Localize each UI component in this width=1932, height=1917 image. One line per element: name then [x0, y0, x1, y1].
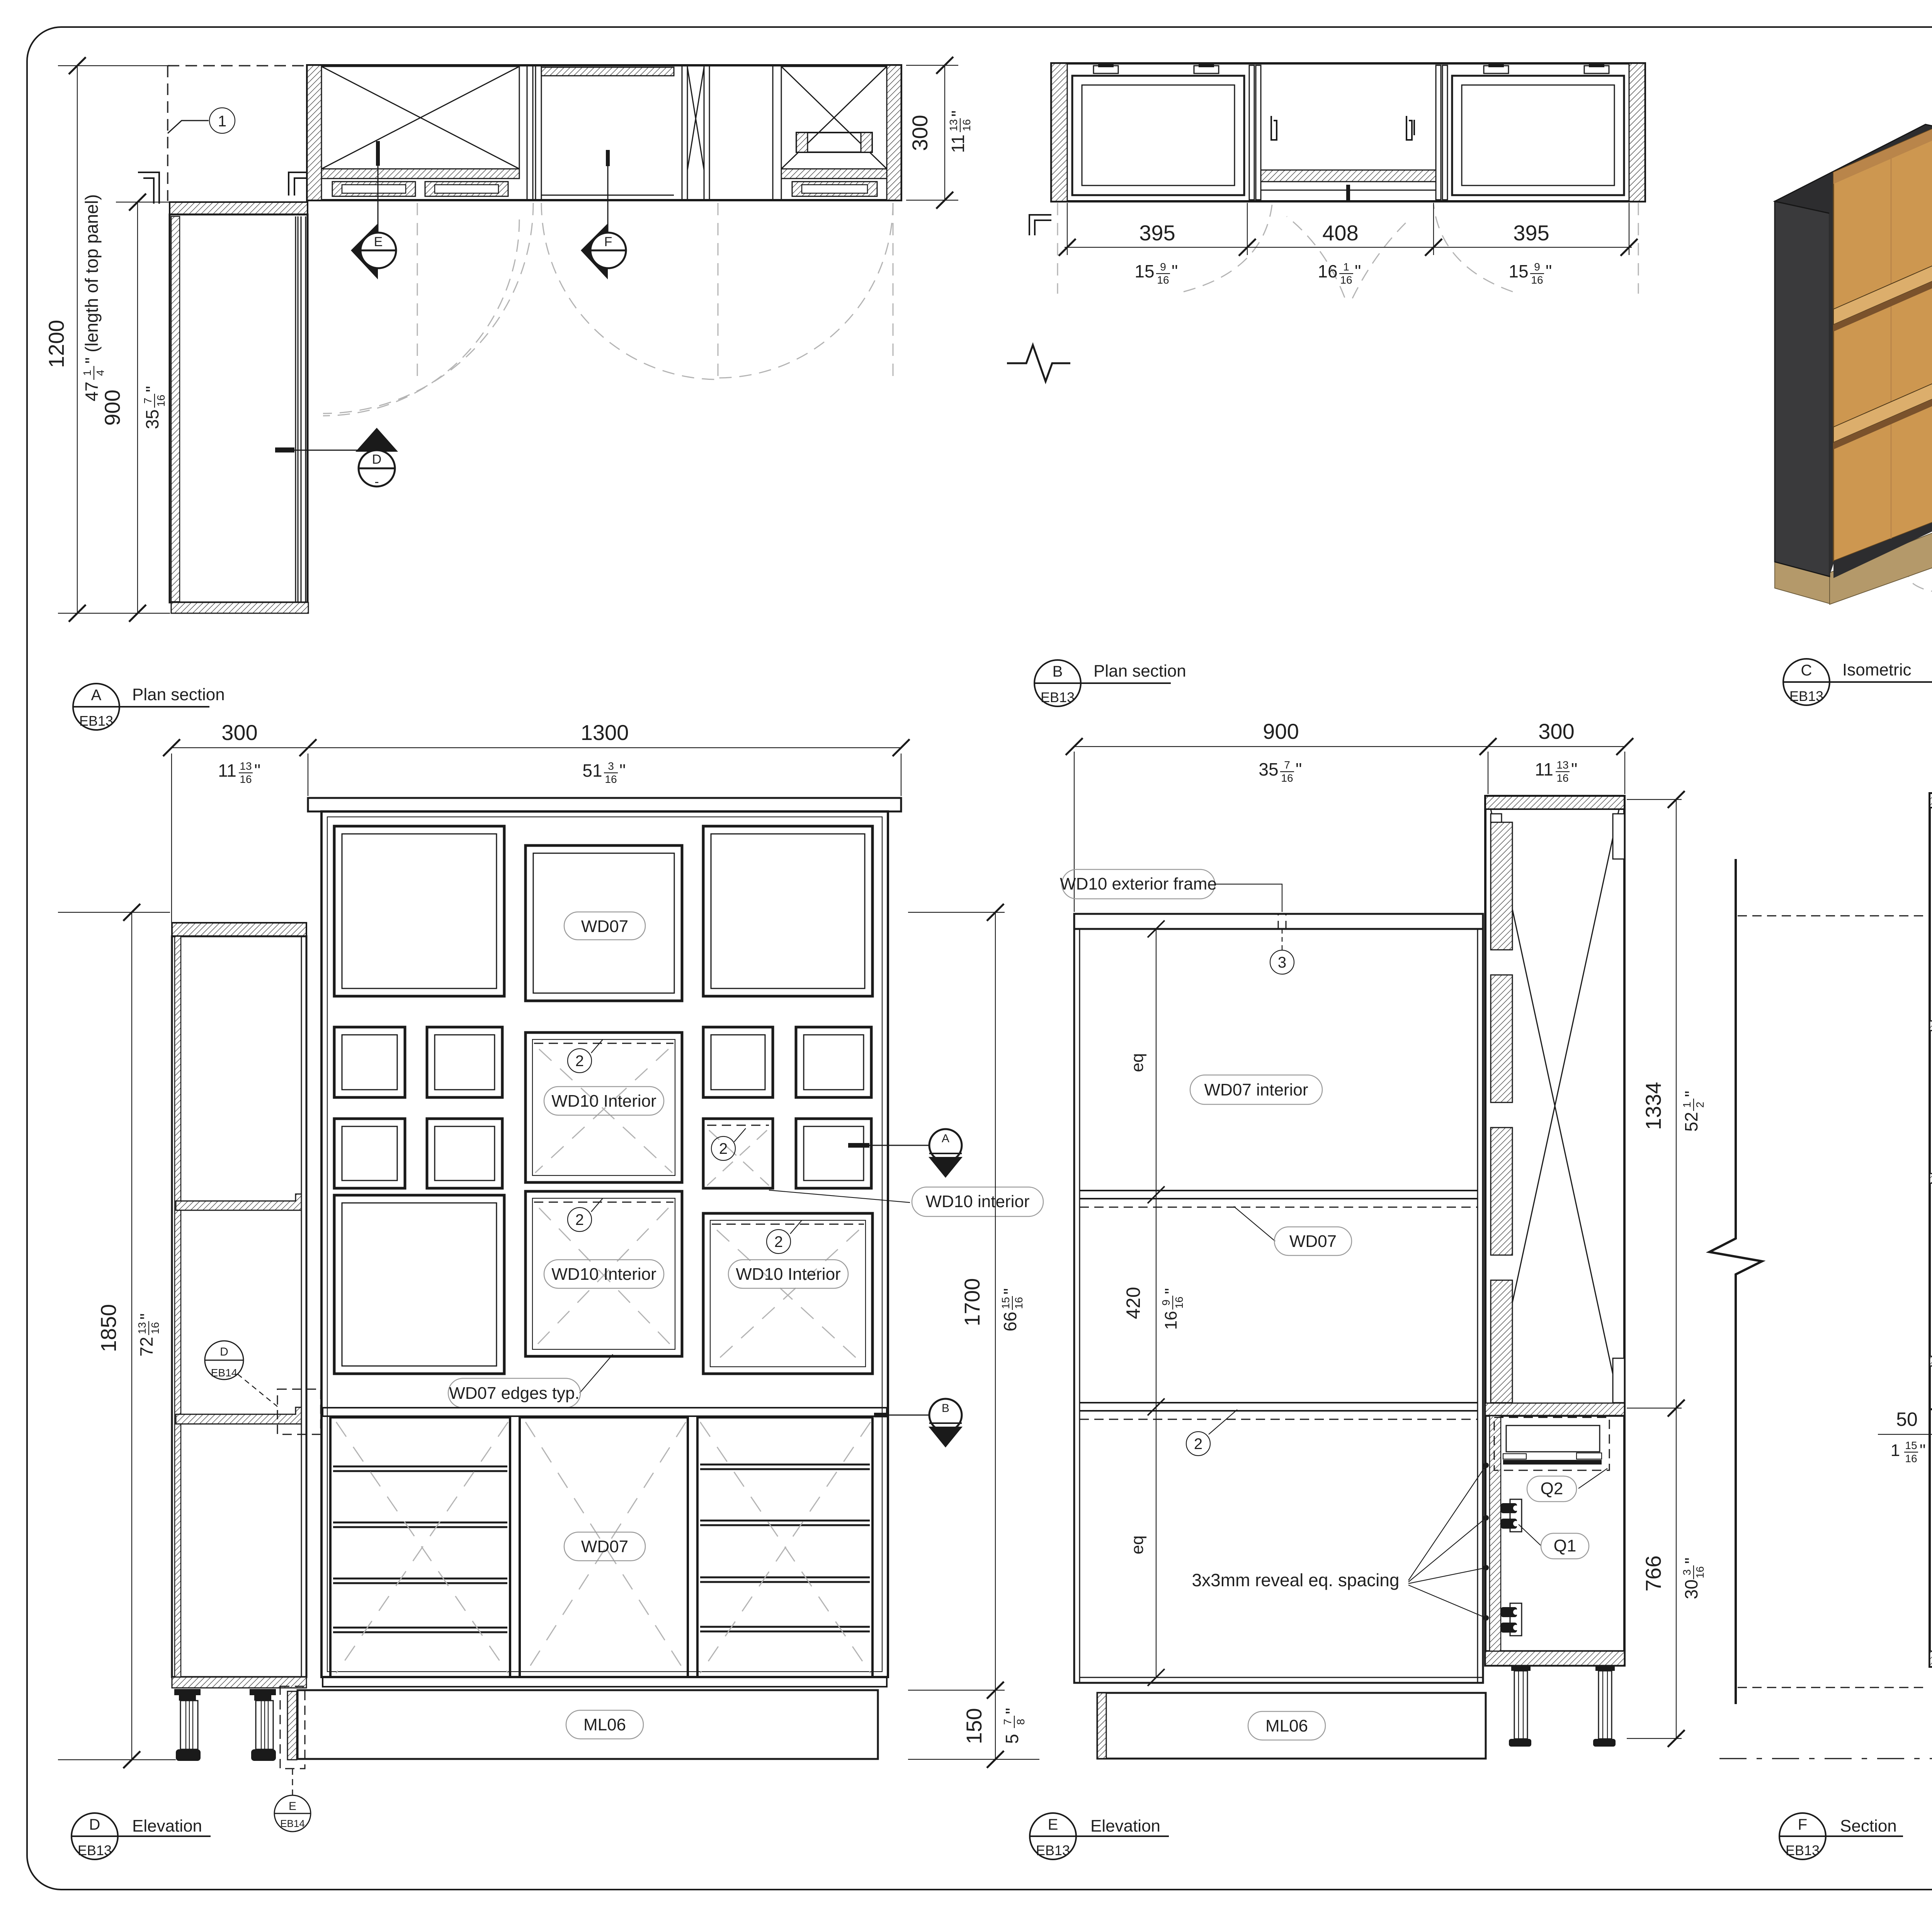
svg-text:13: 13 — [136, 1322, 148, 1334]
svg-text:7: 7 — [142, 398, 154, 404]
svg-text:35: 35 — [1259, 759, 1278, 779]
svg-text:1300: 1300 — [581, 720, 629, 745]
svg-text:2: 2 — [1694, 1102, 1706, 1108]
svg-text:9: 9 — [1160, 1300, 1172, 1306]
svg-text:EB13: EB13 — [79, 713, 113, 729]
svg-text:1850: 1850 — [96, 1304, 121, 1352]
svg-text:": " — [1920, 1441, 1926, 1460]
svg-text:16: 16 — [1694, 1566, 1706, 1578]
svg-text:52: 52 — [1681, 1112, 1701, 1131]
svg-text:Section: Section — [1840, 1817, 1897, 1835]
svg-text:2: 2 — [719, 1140, 728, 1157]
svg-text:35: 35 — [142, 409, 162, 429]
svg-text:16: 16 — [155, 395, 167, 407]
svg-text:300: 300 — [1538, 719, 1574, 743]
svg-text:66: 66 — [1000, 1311, 1020, 1331]
svg-text:-: - — [374, 475, 379, 489]
svg-text:2: 2 — [575, 1053, 584, 1070]
svg-text:30: 30 — [1681, 1579, 1701, 1599]
svg-text:1: 1 — [81, 370, 93, 376]
svg-text:5: 5 — [1002, 1734, 1022, 1744]
svg-text:1334: 1334 — [1641, 1082, 1665, 1130]
svg-text:WD07: WD07 — [1289, 1232, 1337, 1251]
svg-text:Isometric: Isometric — [1842, 660, 1911, 679]
svg-text:16: 16 — [1318, 261, 1337, 281]
svg-text:1: 1 — [1681, 1102, 1693, 1108]
svg-text:395: 395 — [1513, 221, 1549, 245]
svg-text:eq: eq — [1128, 1536, 1147, 1555]
svg-text:Elevation: Elevation — [1090, 1817, 1160, 1835]
svg-text:16: 16 — [1157, 274, 1169, 286]
svg-text:8: 8 — [1015, 1719, 1027, 1725]
svg-text:ML06: ML06 — [583, 1715, 626, 1734]
svg-text:E: E — [289, 1800, 296, 1813]
svg-text:1: 1 — [1343, 261, 1349, 273]
svg-text:D: D — [89, 1816, 100, 1833]
svg-text:1: 1 — [218, 113, 226, 130]
svg-text:" (length of top panel): " (length of top panel) — [82, 194, 102, 364]
svg-text:3: 3 — [608, 760, 614, 772]
svg-text:Elevation: Elevation — [132, 1817, 202, 1835]
svg-text:16: 16 — [1013, 1297, 1025, 1309]
svg-text:WD07: WD07 — [581, 1537, 628, 1556]
svg-text:11: 11 — [1535, 759, 1553, 779]
svg-text:": " — [1681, 1091, 1701, 1097]
svg-text:Plan section: Plan section — [132, 685, 225, 704]
svg-text:F: F — [1798, 1816, 1807, 1833]
svg-text:9: 9 — [1160, 261, 1166, 273]
svg-text:": " — [1172, 261, 1178, 281]
svg-text:eq: eq — [1128, 1053, 1147, 1072]
svg-text:13: 13 — [947, 119, 959, 131]
svg-text:420: 420 — [1122, 1287, 1144, 1319]
svg-text:7: 7 — [1284, 759, 1290, 771]
svg-text:": " — [142, 386, 162, 392]
svg-text:ML06: ML06 — [1265, 1716, 1308, 1735]
svg-text:395: 395 — [1139, 221, 1175, 245]
svg-text:766: 766 — [1641, 1555, 1665, 1591]
svg-text:": " — [1571, 759, 1577, 779]
svg-text:": " — [948, 111, 968, 117]
svg-text:EB14: EB14 — [211, 1367, 238, 1379]
svg-text:900: 900 — [100, 390, 124, 425]
svg-text:": " — [254, 760, 260, 781]
svg-text:3: 3 — [1278, 954, 1286, 971]
svg-text:13: 13 — [240, 760, 252, 772]
svg-text:9: 9 — [1534, 261, 1540, 273]
svg-text:WD07: WD07 — [581, 917, 628, 936]
svg-text:15: 15 — [1000, 1297, 1012, 1309]
svg-text:WD07 edges typ.: WD07 edges typ. — [449, 1384, 580, 1403]
svg-text:EB13: EB13 — [1789, 688, 1823, 704]
svg-text:EB13: EB13 — [1036, 1842, 1070, 1858]
svg-text:WD10 interior: WD10 interior — [926, 1192, 1030, 1211]
svg-text:2: 2 — [575, 1211, 584, 1228]
svg-text:EB13: EB13 — [1786, 1842, 1820, 1858]
svg-text:15: 15 — [1905, 1439, 1917, 1451]
svg-text:16: 16 — [1173, 1296, 1185, 1308]
svg-text:47: 47 — [82, 381, 102, 401]
svg-text:16: 16 — [1281, 772, 1293, 784]
svg-text:3: 3 — [1681, 1569, 1693, 1575]
svg-text:16: 16 — [1162, 1311, 1180, 1330]
svg-text:51: 51 — [582, 760, 602, 781]
svg-text:16: 16 — [1531, 274, 1543, 286]
svg-text:72: 72 — [136, 1337, 156, 1356]
svg-text:": " — [1000, 1288, 1020, 1294]
svg-text:16: 16 — [605, 773, 617, 785]
svg-text:11: 11 — [948, 134, 968, 153]
svg-text:D: D — [372, 452, 382, 467]
svg-text:A: A — [91, 687, 102, 704]
svg-text:": " — [1681, 1558, 1701, 1564]
svg-text:WD10 exterior frame: WD10 exterior frame — [1060, 874, 1217, 893]
svg-text:1200: 1200 — [44, 320, 68, 368]
svg-text:": " — [1355, 261, 1361, 281]
svg-text:15: 15 — [1134, 261, 1154, 281]
svg-text:13: 13 — [1556, 759, 1568, 771]
svg-text:EB13: EB13 — [78, 1842, 112, 1858]
svg-text:WD10 Interior: WD10 Interior — [551, 1092, 656, 1111]
svg-text:16: 16 — [1556, 772, 1568, 784]
svg-text:408: 408 — [1322, 221, 1358, 245]
svg-text:EB14: EB14 — [280, 1818, 305, 1829]
svg-text:": " — [1296, 759, 1302, 779]
svg-text:EB13: EB13 — [1041, 689, 1075, 705]
svg-text:Q2: Q2 — [1541, 1479, 1563, 1498]
svg-text:16: 16 — [149, 1322, 161, 1334]
svg-text:": " — [136, 1313, 156, 1320]
svg-text:1: 1 — [1891, 1441, 1900, 1460]
svg-text:B: B — [1053, 663, 1063, 680]
svg-text:E: E — [374, 235, 383, 249]
svg-text:WD07 interior: WD07 interior — [1204, 1080, 1308, 1099]
svg-text:C: C — [1801, 662, 1812, 679]
svg-text:900: 900 — [1263, 719, 1299, 743]
svg-text:150: 150 — [962, 1708, 986, 1744]
svg-text:4: 4 — [94, 370, 106, 376]
svg-text:3x3mm reveal eq. spacing: 3x3mm reveal eq. spacing — [1192, 1570, 1400, 1590]
svg-text:WD10 Interior: WD10 Interior — [551, 1265, 656, 1284]
svg-text:50: 50 — [1896, 1408, 1918, 1430]
svg-text:15: 15 — [1509, 261, 1528, 281]
svg-text:": " — [1546, 261, 1552, 281]
svg-text:300: 300 — [908, 115, 932, 151]
svg-text:16: 16 — [240, 773, 252, 785]
svg-text:Q1: Q1 — [1554, 1536, 1577, 1555]
svg-text:": " — [1002, 1708, 1022, 1714]
svg-text:D: D — [220, 1345, 228, 1358]
svg-text:Plan section: Plan section — [1094, 662, 1186, 680]
svg-text:7: 7 — [1002, 1719, 1014, 1725]
svg-text:": " — [619, 760, 626, 781]
svg-text:A: A — [942, 1132, 949, 1145]
svg-text:B: B — [942, 1402, 949, 1415]
svg-text:1700: 1700 — [960, 1278, 984, 1327]
svg-text:E: E — [1048, 1816, 1058, 1833]
svg-text:16: 16 — [961, 119, 973, 131]
svg-text:2: 2 — [1194, 1436, 1202, 1453]
svg-text:WD10 Interior: WD10 Interior — [736, 1265, 840, 1284]
svg-text:": " — [1162, 1288, 1180, 1294]
svg-text:F: F — [604, 235, 612, 249]
svg-text:11: 11 — [218, 760, 236, 781]
svg-text:16: 16 — [1905, 1453, 1917, 1465]
svg-text:300: 300 — [221, 720, 257, 745]
svg-text:2: 2 — [774, 1233, 783, 1250]
svg-text:16: 16 — [1340, 274, 1352, 286]
